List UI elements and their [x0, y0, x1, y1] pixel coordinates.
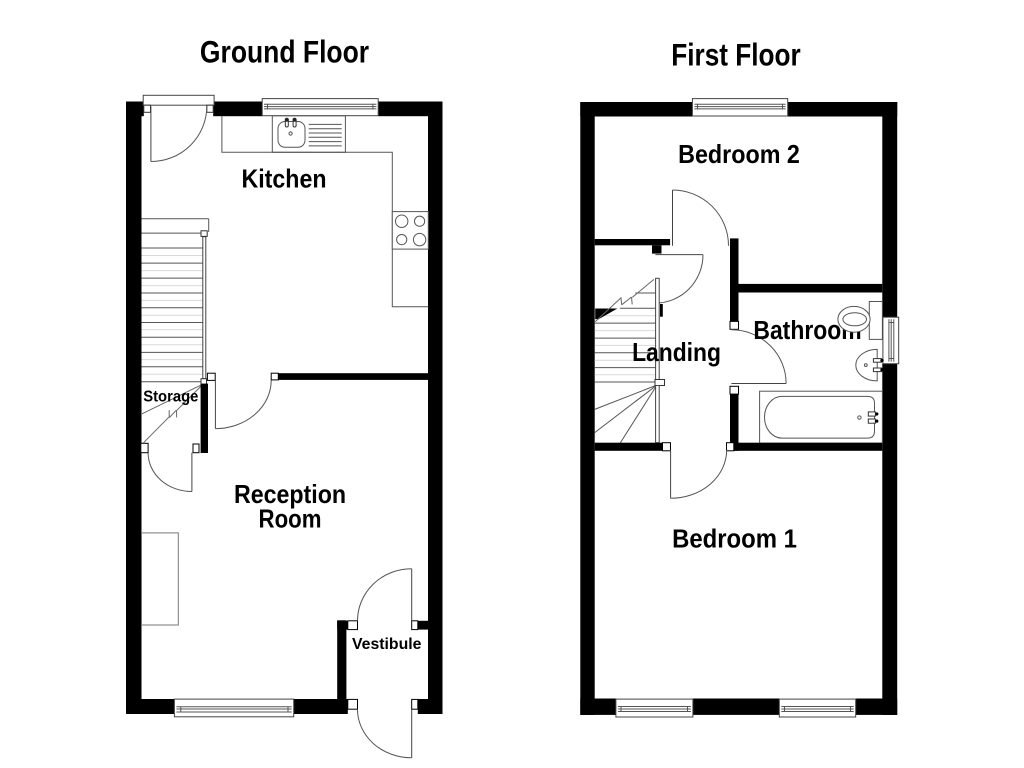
- svg-text:Bedroom 2: Bedroom 2: [678, 141, 800, 169]
- svg-text:Storage: Storage: [143, 388, 198, 405]
- svg-text:Vestibule: Vestibule: [352, 636, 422, 653]
- svg-text:Kitchen: Kitchen: [241, 166, 326, 194]
- svg-text:Room: Room: [259, 505, 322, 534]
- svg-text:First Floor: First Floor: [671, 38, 800, 73]
- svg-text:Ground Floor: Ground Floor: [200, 35, 369, 70]
- svg-text:Bedroom 1: Bedroom 1: [672, 525, 797, 554]
- svg-text:Landing: Landing: [632, 339, 721, 368]
